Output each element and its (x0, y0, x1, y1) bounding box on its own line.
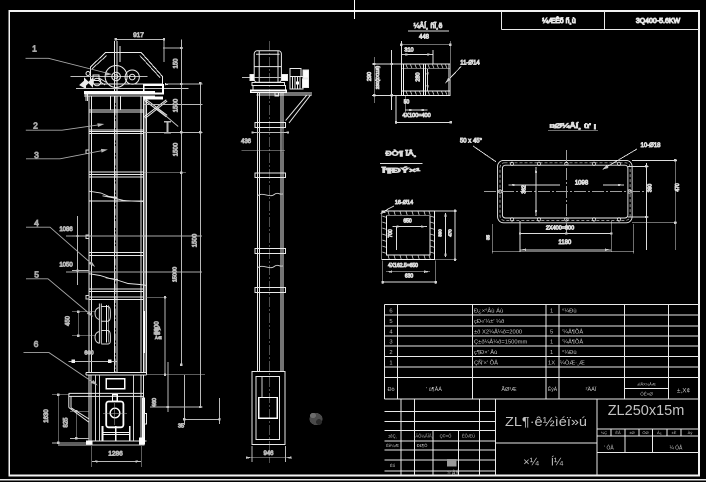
svg-text:Á¿: Á¿ (657, 430, 663, 435)
svg-text:ÓÉ«Ø: ÓÉ«Ø (640, 391, 653, 397)
svg-text:448: 448 (419, 34, 430, 40)
svg-text:Ç©×Ö: Ç©×Ö (440, 434, 453, 439)
svg-text:1X: 1X (548, 360, 555, 366)
svg-text:ÊýÁ: ÊýÁ (548, 385, 558, 393)
svg-text:10-Ø18: 10-Ø18 (640, 143, 661, 149)
svg-text:15000: 15000 (173, 267, 179, 282)
svg-text:Ð¿×°Âù Áù: Ð¿×°Âù Áù (474, 307, 503, 314)
svg-text:16-Ø14: 16-Ø14 (395, 200, 413, 206)
svg-text:Í¼: Í¼ (551, 456, 564, 469)
svg-text:1286: 1286 (108, 450, 123, 457)
svg-text:35: 35 (178, 424, 184, 430)
svg-text:35: 35 (486, 235, 491, 241)
svg-text:1: 1 (550, 340, 553, 346)
svg-text:¹² ÅÝ: ¹² ÅÝ (447, 470, 459, 477)
svg-text:50: 50 (404, 99, 410, 105)
svg-text:Éó: Éó (390, 463, 396, 468)
svg-text:'¼Å¶ÕÅ: '¼Å¶ÕÅ (562, 339, 583, 346)
svg-text:2: 2 (33, 121, 38, 131)
svg-text:±ÏÅX¼ÅÆ: ±ÏÅX¼ÅÆ (637, 382, 656, 387)
svg-text:ÖØ: ÖØ (642, 430, 648, 435)
svg-text:¼Ç: ¼Ç (601, 430, 607, 435)
svg-text:700: 700 (388, 229, 394, 238)
svg-text:150: 150 (174, 58, 180, 69)
svg-text:390: 390 (648, 184, 654, 193)
svg-text:11-Ø14: 11-Ø14 (460, 61, 480, 67)
svg-text:630: 630 (405, 274, 414, 280)
svg-text:946: 946 (263, 451, 274, 457)
svg-text:470: 470 (448, 229, 453, 237)
svg-text:5: 5 (550, 330, 553, 336)
svg-text:450: 450 (66, 315, 72, 326)
svg-text:±,X¢: ±,X¢ (677, 388, 691, 395)
svg-text:2: 2 (389, 350, 392, 356)
svg-text:ÇÑ'×' ÕÅ: ÇÑ'×' ÕÅ (474, 359, 498, 366)
svg-text:4X162.5=650: 4X162.5=650 (388, 263, 418, 269)
svg-text:917: 917 (133, 32, 144, 39)
svg-text:1: 1 (32, 44, 37, 54)
svg-text:1500: 1500 (174, 142, 180, 156)
svg-text:660: 660 (84, 351, 93, 357)
svg-text:50 x 45°: 50 x 45° (460, 139, 483, 145)
svg-text:310: 310 (404, 48, 413, 54)
svg-text:ÃØ³Æ: ÃØ³Æ (501, 386, 517, 393)
svg-text:ÈÕÆÚ: ÈÕÆÚ (462, 434, 475, 439)
svg-text:Éè¼Æ: Éè¼Æ (386, 443, 399, 448)
svg-text:390: 390 (438, 229, 443, 237)
svg-text:3: 3 (389, 340, 392, 346)
svg-text:6: 6 (34, 339, 39, 349)
svg-text:4: 4 (34, 218, 39, 228)
svg-text:230(2X115): 230(2X115) (375, 65, 380, 89)
svg-text:Ç±ð¼Å¼ð=1500mm: Ç±ð¼Å¼ð=1500mm (474, 339, 527, 346)
svg-text:¸ÄÕ¼ÅÎÅ¸: ¸ÄÕ¼ÅÎÅ¸ (414, 434, 433, 439)
svg-text:¼ÆÊõ ñ¸ù: ¼ÆÊõ ñ¸ù (542, 16, 576, 25)
svg-text:°¼Ðù: °¼Ðù (562, 308, 577, 314)
svg-text:825: 825 (64, 417, 70, 428)
svg-text:2X400=800: 2X400=800 (546, 225, 574, 231)
svg-text:ÐÒ¶ ÏÅ¸: ÐÒ¶ ÏÅ¸ (386, 149, 417, 158)
svg-text:5: 5 (34, 269, 39, 279)
svg-text:1086: 1086 (59, 227, 73, 233)
svg-text:1: 1 (389, 360, 392, 366)
svg-text:290: 290 (367, 72, 373, 81)
svg-text:4X100=400: 4X100=400 (402, 113, 430, 119)
svg-text:¼ ÓÅ: ¼ ÓÅ (670, 445, 683, 452)
svg-text:Ðò: Ðò (387, 387, 394, 393)
svg-text:460: 460 (152, 398, 158, 407)
svg-text:436: 436 (241, 139, 252, 145)
svg-text:1500: 1500 (174, 98, 180, 112)
svg-text:ZL¶·ê½ìéï»ú: ZL¶·ê½ìéï»ú (505, 415, 587, 429)
svg-text:¼ÅÍ¸ ñÏ¸ë: ¼ÅÍ¸ ñÏ¸ë (414, 21, 443, 30)
svg-text:çÐ«'¼±' ¼ð: çÐ«'¼±' ¼ð (474, 318, 505, 325)
svg-text:ÅÆ: ÅÆ (155, 335, 162, 340)
svg-text:1: 1 (550, 350, 553, 356)
svg-text:650: 650 (403, 218, 412, 224)
svg-text:±êÇ¸: ±êÇ¸ (388, 434, 397, 439)
svg-text:1: 1 (550, 308, 553, 314)
svg-text:' ù¶ÅÁ: ' ù¶ÅÁ (426, 386, 442, 393)
svg-text:°¼Ðù: °¼Ðù (562, 350, 577, 356)
svg-text:4: 4 (389, 330, 393, 336)
svg-text:Ð£¶Ô: Ð£¶Ô (417, 443, 429, 448)
svg-text:1500: 1500 (193, 233, 199, 247)
svg-text:ZL250x15m: ZL250x15m (608, 403, 685, 419)
svg-text:±Ø: ±Ø (629, 430, 634, 435)
svg-text:Ï¶ÐÝ×¹: Ï¶ÐÝ×¹ (382, 165, 422, 174)
svg-text:1050: 1050 (59, 263, 73, 269)
svg-text:±ð X2¼Å¼ð=2000: ±ð X2¼Å¼ð=2000 (474, 329, 522, 336)
svg-text:362: 362 (522, 185, 528, 194)
svg-text:±È: ±È (672, 430, 677, 435)
svg-text:¤Ø¼ÅÍ¸ ù' ¡: ¤Ø¼ÅÍ¸ ù' ¡ (550, 121, 597, 130)
svg-text:1098: 1098 (575, 180, 589, 186)
svg-text:1630: 1630 (44, 409, 50, 423)
svg-text:×¼: ×¼ (523, 457, 539, 469)
svg-text:Àý: Àý (688, 430, 693, 435)
svg-text:'¼Å¶ÕÅ: '¼Å¶ÕÅ (562, 329, 583, 336)
svg-text:ÊÅ: ÊÅ (615, 430, 621, 435)
svg-text:1180: 1180 (558, 240, 572, 246)
svg-text:470: 470 (675, 183, 681, 192)
svg-text:5: 5 (389, 319, 392, 325)
svg-text:¼ÒÆ·¸Æ: ¼ÒÆ·¸Æ (560, 359, 585, 366)
svg-text:3Q400-5.6KW: 3Q400-5.6KW (636, 18, 681, 25)
svg-text:²ÄÁÏ: ²ÄÁÏ (586, 386, 597, 393)
svg-text:' ÓÅ: ' ÓÅ (604, 445, 614, 452)
svg-text:280: 280 (416, 72, 422, 81)
svg-text:ç¶Ð×' Âù: ç¶Ð×' Âù (474, 349, 497, 356)
svg-text:6: 6 (389, 308, 392, 314)
